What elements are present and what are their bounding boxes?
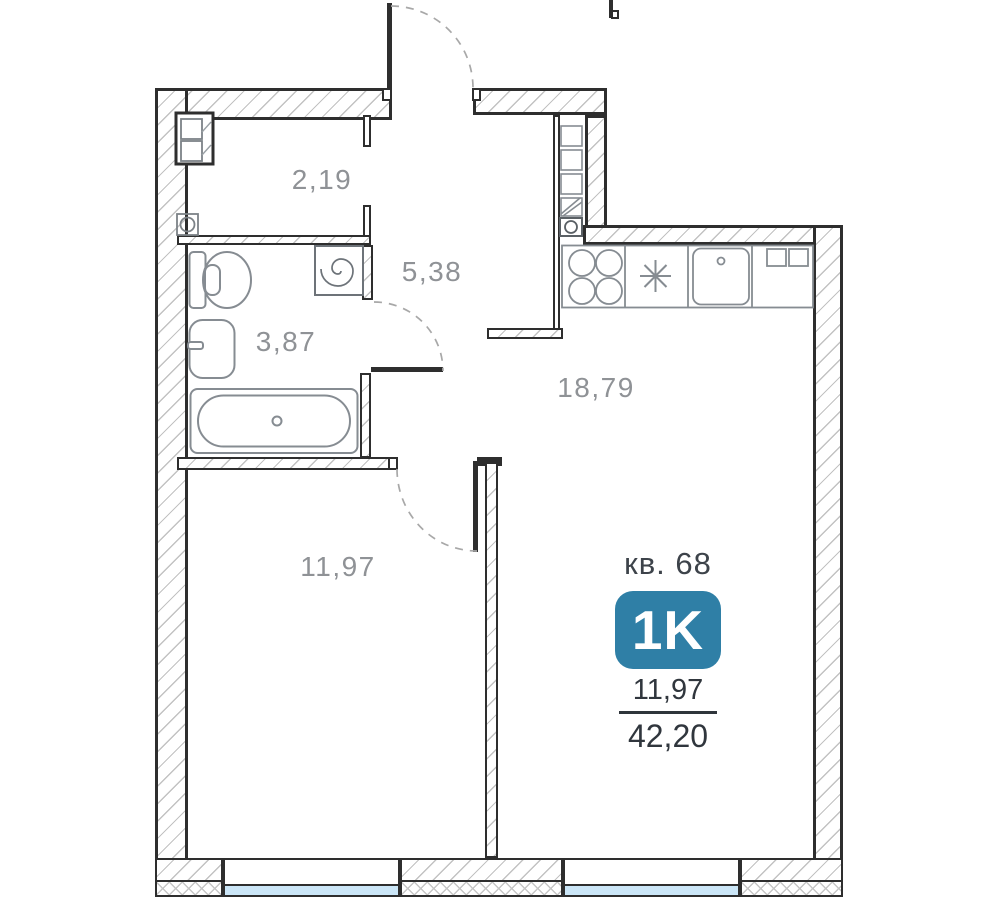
drain-icon: [177, 214, 198, 235]
living-area-value: 11,97: [619, 674, 717, 711]
toilet-icon: [190, 252, 252, 308]
room-label-entry-hall: 2,19: [292, 164, 353, 196]
door-swing-arc-bedroom: [397, 469, 477, 551]
room-label-kitchen-living: 18,79: [557, 372, 635, 404]
room-label-bathroom: 3,87: [256, 326, 317, 358]
apartment-type-badge: 1K: [615, 591, 721, 669]
fixtures-layer: [0, 0, 1000, 900]
ventilation-shaft-icon: [560, 126, 582, 236]
wardrobe-icon: [176, 113, 213, 164]
door-swing-arc-entry: [391, 6, 473, 88]
floor-plan: 2,19 5,38 3,87 18,79 11,97 кв. 68 1K 11,…: [0, 0, 1000, 900]
washbasin-icon: [188, 320, 235, 378]
total-area-value: 42,20: [619, 711, 717, 755]
apartment-info: кв. 68 1K 11,97 42,20: [592, 546, 744, 755]
washing-machine-icon: [315, 246, 363, 295]
room-label-corridor: 5,38: [402, 256, 463, 288]
area-fraction: 11,97 42,20: [619, 674, 717, 755]
door-swing-arc-bathroom: [374, 302, 443, 371]
bathtub-icon: [191, 389, 358, 453]
room-label-bedroom: 11,97: [300, 551, 376, 583]
apartment-number: кв. 68: [592, 546, 744, 582]
kitchen-sink-icon: [693, 249, 749, 305]
